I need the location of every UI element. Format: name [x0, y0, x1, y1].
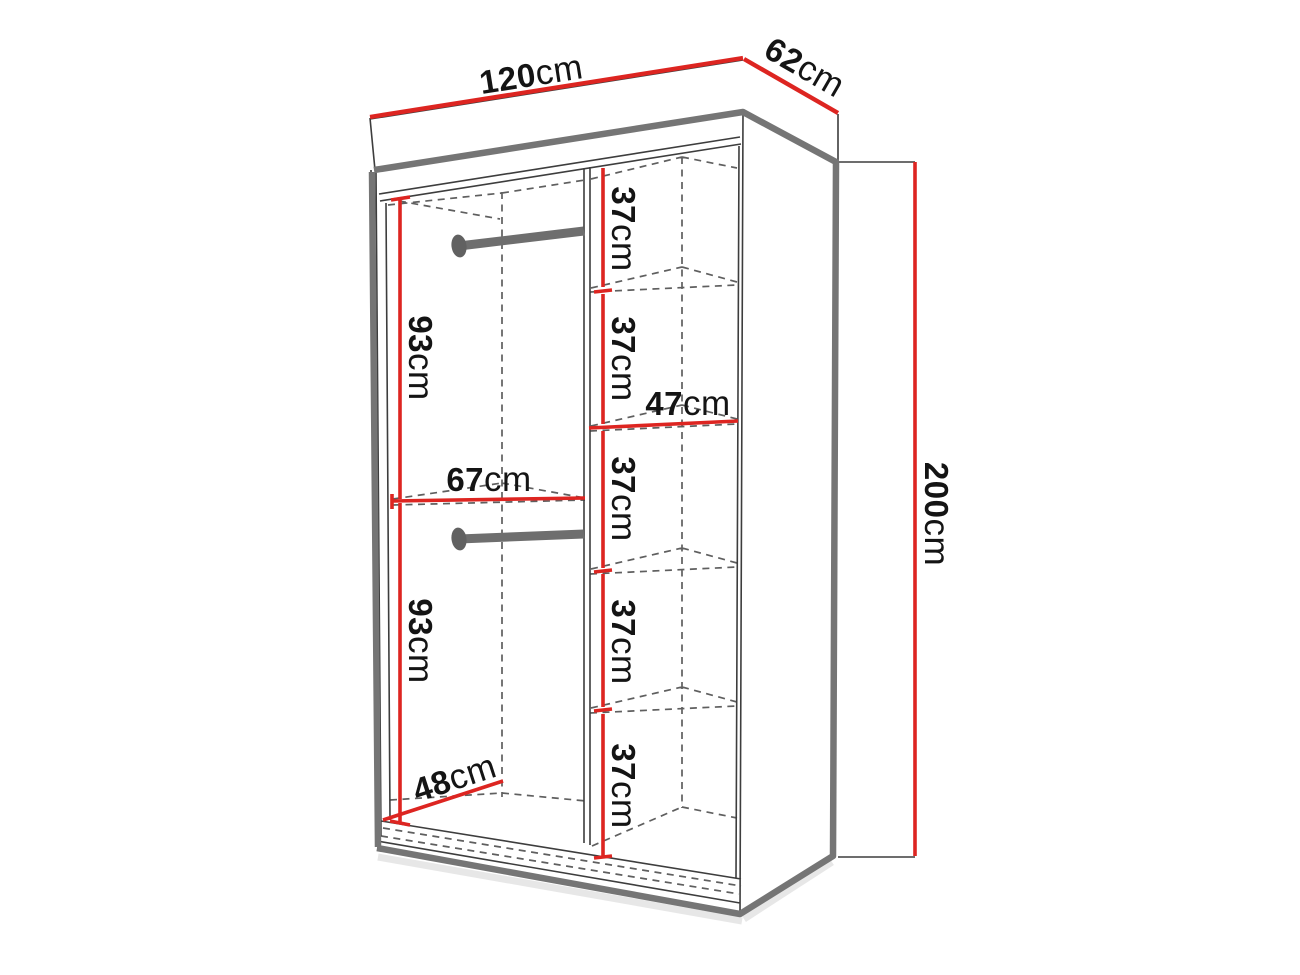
hanging-rail-bottom [450, 527, 584, 552]
dimension-shelf-heights: 37cm 37cm 37cm 37cm 37cm [594, 168, 643, 858]
shelf-height-label-4: 37cm [604, 599, 643, 684]
shelf-height-label-1: 37cm [604, 186, 643, 271]
hanging-width-label: 67cm [446, 460, 531, 499]
dimension-overall-depth: 62cm [744, 29, 851, 113]
shelf-height-label-3: 37cm [604, 456, 643, 541]
dimensions: 120cm 62cm 200cm 93cm 93cm 67cm [370, 29, 956, 858]
dimension-overall-width: 120cm [370, 47, 743, 117]
diagram-canvas: 120cm 62cm 200cm 93cm 93cm 67cm [0, 0, 1300, 975]
dimension-overall-height: 200cm [915, 162, 956, 856]
shelf-width-label: 47cm [645, 384, 730, 423]
bottom-section-height-label: 93cm [401, 598, 440, 683]
top-section-height-label: 93cm [401, 315, 440, 400]
shelf-height-label-2: 37cm [604, 316, 643, 401]
dimension-top-section-height: 93cm [391, 197, 440, 499]
dimension-hanging-width: 67cm [392, 460, 585, 509]
hanging-rail-top [450, 231, 584, 258]
shelf-height-label-5: 37cm [604, 743, 643, 828]
wardrobe-dimensions-diagram: 120cm 62cm 200cm 93cm 93cm 67cm [0, 0, 1300, 975]
interior-depth-label: 48cm [408, 746, 501, 809]
overall-height-label: 200cm [917, 462, 956, 566]
